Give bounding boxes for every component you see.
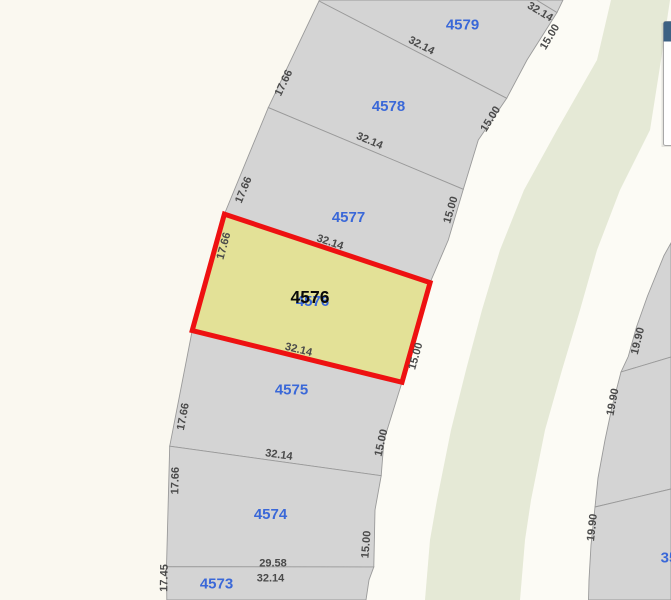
svg-text:4578: 4578 bbox=[372, 98, 405, 115]
svg-text:17.45: 17.45 bbox=[158, 564, 170, 592]
svg-text:17.66: 17.66 bbox=[169, 467, 182, 495]
svg-text:15.00: 15.00 bbox=[359, 530, 373, 558]
svg-text:4574: 4574 bbox=[254, 506, 288, 523]
svg-text:32.14: 32.14 bbox=[257, 573, 285, 585]
svg-text:4577: 4577 bbox=[332, 209, 365, 226]
svg-text:4576: 4576 bbox=[291, 287, 330, 307]
svg-text:4579: 4579 bbox=[446, 17, 479, 34]
svg-text:4573: 4573 bbox=[200, 576, 233, 593]
svg-text:29.58: 29.58 bbox=[259, 557, 287, 569]
svg-text:35: 35 bbox=[661, 550, 671, 567]
svg-text:4575: 4575 bbox=[275, 382, 308, 399]
